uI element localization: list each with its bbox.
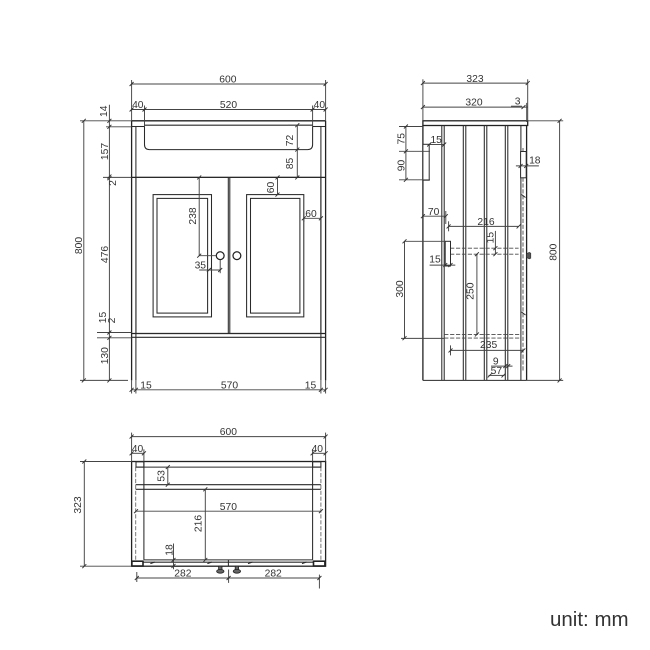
svg-text:15: 15 <box>485 232 496 244</box>
svg-text:800: 800 <box>548 243 559 260</box>
svg-text:15: 15 <box>140 380 152 391</box>
svg-text:238: 238 <box>188 207 199 224</box>
svg-text:2: 2 <box>108 180 119 186</box>
svg-text:57: 57 <box>491 366 503 377</box>
svg-text:53: 53 <box>157 470 168 482</box>
svg-text:72: 72 <box>285 135 296 147</box>
svg-text:570: 570 <box>220 502 237 513</box>
svg-text:3: 3 <box>515 96 521 107</box>
svg-text:2: 2 <box>107 317 118 323</box>
svg-text:282: 282 <box>265 569 282 580</box>
svg-text:85: 85 <box>285 158 296 170</box>
svg-text:323: 323 <box>466 74 483 85</box>
svg-text:323: 323 <box>73 496 84 513</box>
svg-text:40: 40 <box>314 100 326 111</box>
svg-text:90: 90 <box>397 160 408 172</box>
svg-text:600: 600 <box>219 74 236 85</box>
svg-text:18: 18 <box>529 156 541 167</box>
svg-text:40: 40 <box>132 444 144 455</box>
svg-text:18: 18 <box>164 544 175 556</box>
svg-text:15: 15 <box>429 254 441 265</box>
svg-text:60: 60 <box>305 209 317 220</box>
svg-text:282: 282 <box>174 569 191 580</box>
svg-text:40: 40 <box>132 100 144 111</box>
svg-text:130: 130 <box>100 347 111 364</box>
svg-text:235: 235 <box>480 340 497 351</box>
svg-text:216: 216 <box>477 217 494 228</box>
svg-text:15: 15 <box>430 135 442 146</box>
svg-text:520: 520 <box>220 100 237 111</box>
svg-text:570: 570 <box>221 380 238 391</box>
svg-text:40: 40 <box>312 444 324 455</box>
svg-text:75: 75 <box>397 133 408 145</box>
svg-text:476: 476 <box>100 246 111 263</box>
svg-text:70: 70 <box>428 207 440 218</box>
svg-text:157: 157 <box>100 143 111 160</box>
svg-text:300: 300 <box>395 280 406 297</box>
svg-text:250: 250 <box>465 282 476 299</box>
svg-text:320: 320 <box>465 98 482 109</box>
svg-text:600: 600 <box>220 427 237 438</box>
svg-text:14: 14 <box>99 105 110 117</box>
svg-text:800: 800 <box>74 237 85 254</box>
svg-text:15: 15 <box>305 380 317 391</box>
svg-text:216: 216 <box>194 515 205 532</box>
svg-text:60: 60 <box>266 182 277 194</box>
svg-text:35: 35 <box>195 260 207 271</box>
svg-text:unit: mm: unit: mm <box>550 608 629 631</box>
